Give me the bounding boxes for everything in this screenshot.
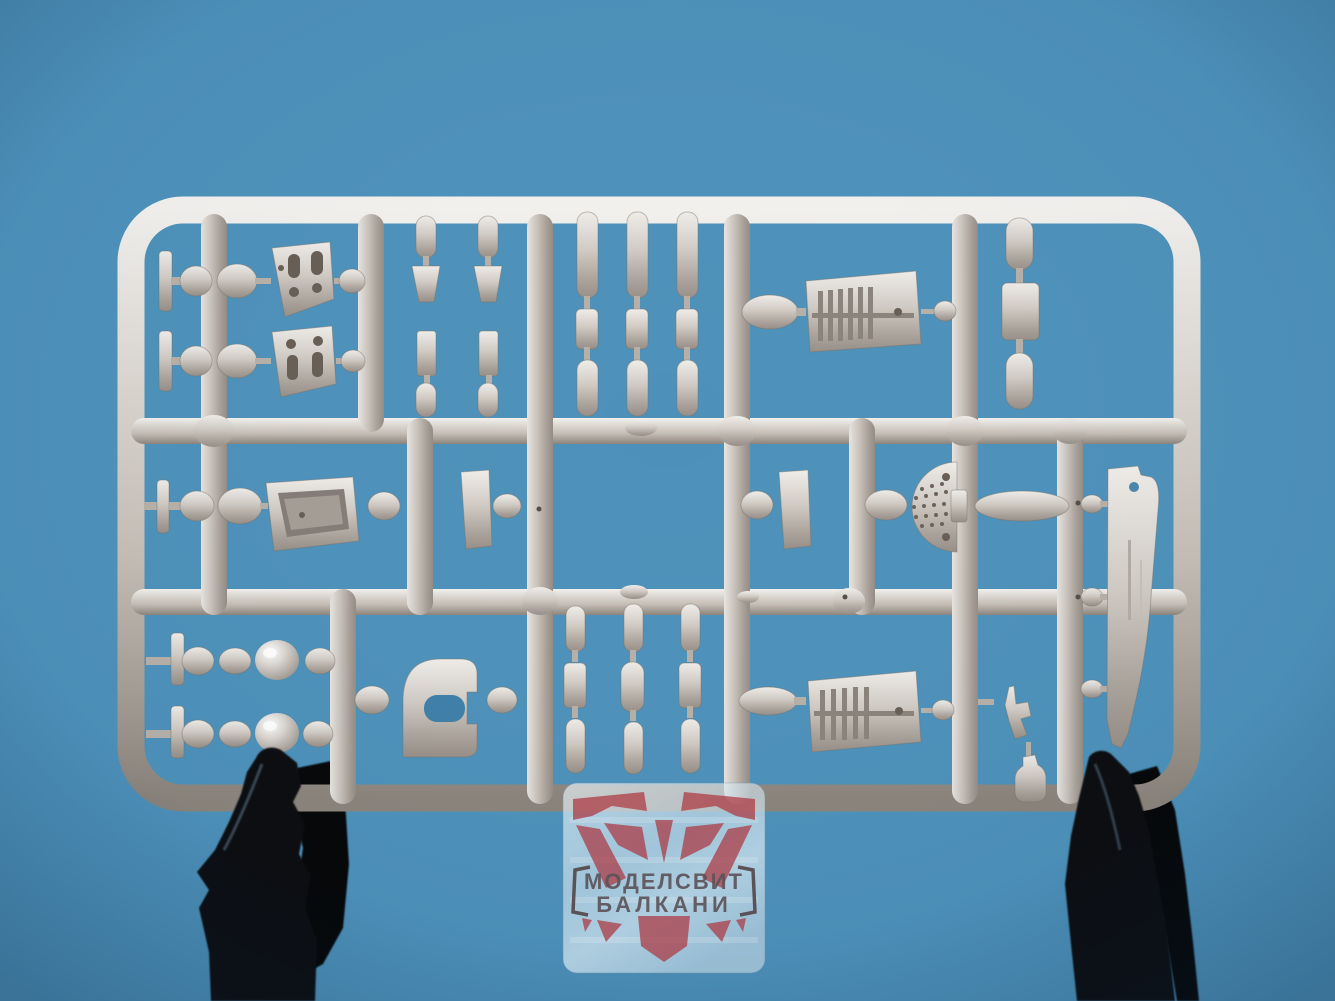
brand-text: МОДЕЛСВИТ БАЛКАНИ (584, 869, 744, 917)
brand-line-2: БАЛКАНИ (596, 892, 732, 917)
sprue-photo: МОДЕЛСВИТ БАЛКАНИ (0, 0, 1335, 1001)
brand-line-1: МОДЕЛСВИТ (584, 869, 744, 894)
photo-stage: МОДЕЛСВИТ БАЛКАНИ (0, 0, 1335, 1001)
watermark: МОДЕЛСВИТ БАЛКАНИ (563, 783, 765, 973)
